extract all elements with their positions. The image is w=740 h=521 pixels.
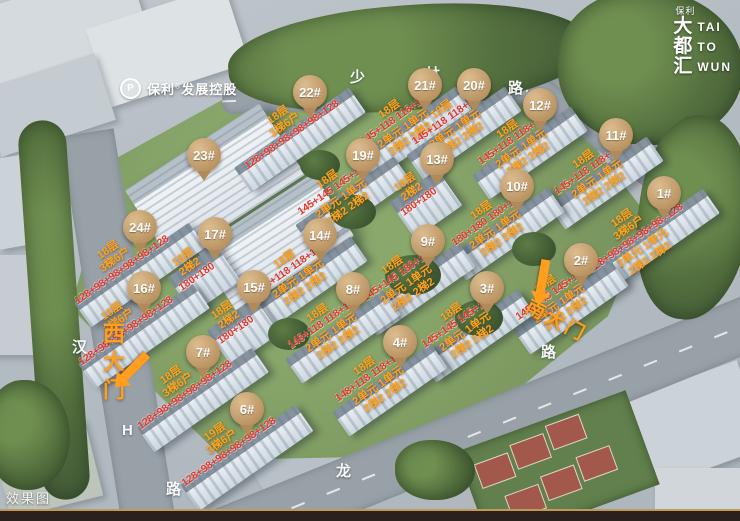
project-logo-row: 大 TAI xyxy=(673,17,732,37)
poly-suffix: 发展控股 xyxy=(181,82,237,97)
poly-developer-logo: P 保利®发展控股 xyxy=(120,78,237,99)
court xyxy=(509,433,552,470)
pin-label: 10# xyxy=(506,179,528,194)
project-logo-cn: 大 xyxy=(673,17,692,37)
project-logo: 保利 大 TAI 都 TO 汇 WUN xyxy=(673,4,732,77)
pin-label: 6# xyxy=(240,402,254,417)
pin-22: 22# xyxy=(293,75,327,109)
court xyxy=(540,464,583,501)
pin-4: 4# xyxy=(383,325,417,359)
project-logo-en: WUN xyxy=(697,61,732,74)
project-logo-en: TO xyxy=(697,41,717,54)
pin-23: 23# xyxy=(187,138,221,172)
pin-3: 3# xyxy=(470,271,504,305)
pin-label: 22# xyxy=(299,85,321,100)
pin-label: 21# xyxy=(414,78,436,93)
pin-label: 4# xyxy=(393,335,407,350)
pin-label: 12# xyxy=(529,98,551,113)
pin-label: 7# xyxy=(196,345,210,360)
poly-icon-letter: P xyxy=(127,83,134,94)
project-logo-en: TAI xyxy=(697,21,721,34)
pin-label: 20# xyxy=(463,78,485,93)
project-logo-cn: 都 xyxy=(673,37,692,57)
pin-20: 20# xyxy=(457,68,491,102)
west-gate-label: 西大门 xyxy=(96,322,128,406)
pin-17: 17# xyxy=(198,217,232,251)
project-logo-row: 汇 WUN xyxy=(673,57,732,77)
watermark-label: 效果图 xyxy=(6,488,51,507)
road-label-bottom-1: 龙 xyxy=(336,460,351,481)
pin-15: 15# xyxy=(237,270,271,304)
poly-company: 保利 xyxy=(147,82,175,97)
pin-label: 19# xyxy=(352,148,374,163)
pin-label: 13# xyxy=(426,152,448,167)
pin-19: 19# xyxy=(346,138,380,172)
pin-16: 16# xyxy=(127,271,161,305)
poly-logo-text: 保利®发展控股 xyxy=(147,79,237,98)
road-label-right-1: 路 xyxy=(541,341,556,362)
court xyxy=(474,452,517,489)
pin-label: 24# xyxy=(129,220,151,235)
pin-14: 14# xyxy=(303,218,337,252)
pin-label: 16# xyxy=(133,281,155,296)
tree-grove xyxy=(395,440,475,500)
pin-label: 3# xyxy=(480,281,494,296)
pin-1: 1# xyxy=(647,176,681,210)
pin-11: 11# xyxy=(599,118,633,152)
pin-6: 6# xyxy=(230,392,264,426)
poly-circle-icon: P xyxy=(120,78,141,99)
court xyxy=(575,445,618,482)
aerial-masterplan-rendering: 18层 3梯6户 128+98+98+98+98+128 18层 145+118… xyxy=(0,0,740,521)
pin-13: 13# xyxy=(420,142,454,176)
pin-label: 9# xyxy=(421,234,435,249)
pin-10: 10# xyxy=(500,169,534,203)
court xyxy=(545,414,588,451)
pin-label: 1# xyxy=(657,186,671,201)
bottom-border-bar xyxy=(0,509,740,521)
pin-label: 11# xyxy=(606,128,627,143)
pin-8: 8# xyxy=(336,272,370,306)
pin-9: 9# xyxy=(411,224,445,258)
pin-label: 2# xyxy=(574,253,588,268)
project-logo-cn: 汇 xyxy=(673,57,692,77)
pin-label: 15# xyxy=(243,280,265,295)
pin-24: 24# xyxy=(123,210,157,244)
pin-label: 23# xyxy=(193,148,215,163)
project-logo-row: 都 TO xyxy=(673,37,732,57)
pin-label: 17# xyxy=(204,227,226,242)
pin-12: 12# xyxy=(523,88,557,122)
pin-21: 21# xyxy=(408,68,442,102)
pin-label: 8# xyxy=(346,282,360,297)
pin-2: 2# xyxy=(564,243,598,277)
pin-7: 7# xyxy=(186,335,220,369)
pin-label: 14# xyxy=(309,228,331,243)
